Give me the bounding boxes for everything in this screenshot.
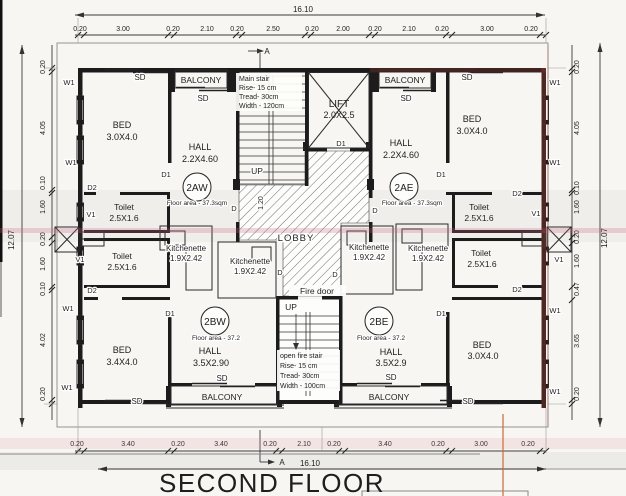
dim-top-12: 3.00 [480,26,494,33]
window-tag: W1 [63,78,74,87]
vent-tag: V1 [75,255,84,264]
hall-label-2be: HALL [380,347,403,357]
toilet-label-2ae: Toilet [469,202,489,212]
sliding-door-tag: SD [134,73,145,82]
lobby-label: LOBBY [278,233,315,244]
dim-right-6: 1.60 [574,254,581,268]
balcony-label: BALCONY [202,392,243,402]
kitchen-label-2aw: Kitchenette [166,244,207,253]
door-tag: D [277,268,283,277]
hall-size-2aw: 2.2X4.60 [182,154,218,164]
fire-stair-up-label: UP [285,302,297,312]
window-tag: W1 [61,383,72,392]
dim-top-7: 0.20 [305,26,319,33]
window-tag: W1 [549,158,560,167]
floor-area-2bw: Floor area - 37.2 [192,335,240,342]
toilet-size-2bw: 2.5X1.6 [107,262,137,272]
dim-left-8: 4.02 [40,333,47,347]
hall-size-2bw: 3.5X2.90 [193,358,229,368]
dim-left-1: 0.20 [40,60,47,74]
door1-tag: D1 [161,170,171,179]
stair-width-dim: 1.20 [258,196,265,210]
lift-label: LIFT [329,99,350,110]
unit-id-2ae: 2AE [395,183,414,194]
kitchen-size-2be: 1.9X2.42 [353,253,386,262]
window-tag: W1 [65,158,76,167]
kitchen-size-2aw: 1.9X2.42 [170,254,203,263]
bed-label-2be: BED [473,340,492,350]
lift-size-label: 2.0X2.5 [323,110,354,120]
vent-tag: V1 [554,255,563,264]
toilet-label-2bw: Toilet [112,251,132,261]
fire-door-label: Fire door [300,286,334,296]
hall-size-2be: 3.5X2.9 [375,358,406,368]
fire-stair-note-line3: Tread- 30cm [280,373,320,380]
fire-stair-note-line2: Rise- 15 cm [280,363,318,370]
main-stair-up-label: UP [251,166,263,176]
floor-area-2ae: Floor area - 37.3sqm [382,200,442,207]
dim-left-6: 1.60 [40,257,47,271]
sliding-door-tag: SD [400,94,411,103]
bed-size-2ae: 3.0X4.0 [456,126,487,136]
sliding-door-tag: SD [216,374,227,383]
toilet-size-2ae: 2.5X1.6 [464,213,494,223]
floor-plan-drawing: 0.20 3.00 0.20 2.10 0.20 2.50 0.20 2.00 … [0,0,626,496]
dim-top-1: 0.20 [73,26,87,33]
dim-left-2: 4.05 [40,121,47,135]
kitchen-label-2bw: Kitchenette [230,257,271,266]
toilet-size-2be: 2.5X1.6 [467,259,497,269]
lift-door-tag: D1 [336,139,346,148]
section-marker-top: A [264,47,270,56]
kitchen-label-2be: Kitchenette [349,243,390,252]
sliding-door-tag: SD [131,397,142,406]
fire-stair-note-line1: open fire stair [280,353,323,360]
dim-top-2: 3.00 [116,26,130,33]
window-tag: W1 [549,387,560,396]
door-tag: D [231,204,237,213]
vent-tag: V1 [86,210,95,219]
main-stair-note-line3: Tread- 30cm [239,94,279,101]
dim-top-11: 0.20 [435,26,449,33]
balcony-label: BALCONY [369,392,410,402]
fire-stair-note-line4: Width - 100cm [280,383,325,390]
dim-right-3: 0.10 [574,181,581,195]
dim-right-9: 0.20 [574,387,581,401]
unit-id-2bw: 2BW [204,317,226,328]
floor-area-2be: Floor area - 37.2 [357,335,405,342]
vent-tag: V1 [531,209,540,218]
door-tag: D [372,206,378,215]
toilet-label-2be: Toilet [471,248,491,258]
window-tag: W1 [549,306,560,315]
main-stair-note-line4: Width - 120cm [239,103,284,110]
dim-top-3: 0.20 [166,26,180,33]
main-stair-note-line1: Main stair [239,76,270,83]
kitchen-size-2bw: 1.9X2.42 [234,267,267,276]
dim-left-4: 1.60 [40,200,47,214]
door2-tag: D2 [87,183,97,192]
main-stair-note-line2: Rise- 15 cm [239,85,277,92]
bed-size-2be: 3.0X4.0 [467,351,498,361]
hall-label-2aw: HALL [189,142,212,152]
scanned-floor-plan-page: 0.20 3.00 0.20 2.10 0.20 2.50 0.20 2.00 … [0,0,626,496]
hall-label-2bw: HALL [199,346,222,356]
bed-label-2bw: BED [113,345,132,355]
door1-tag: D1 [436,170,446,179]
balcony-label: BALCONY [385,75,426,85]
sliding-door-tag: SD [197,94,208,103]
bed-label-2ae: BED [463,114,482,124]
dim-top-4: 2.10 [200,26,214,33]
dim-top-8: 2.00 [336,26,350,33]
window-tag: W1 [62,304,73,313]
sliding-door-tag: SD [461,73,472,82]
dim-left-9: 0.20 [40,387,47,401]
dim-top-9: 0.20 [368,26,382,33]
dim-right-2: 4.05 [574,121,581,135]
door2-tag: D2 [512,189,522,198]
bed-label-2aw: BED [113,120,132,130]
dim-right-1: 0.20 [574,60,581,74]
drawing-title: SECOND FLOOR [159,468,385,496]
sliding-door-tag: SD [385,373,396,382]
kitchen-label-2ae: Kitchenette [408,244,449,253]
dim-top-6: 2.50 [266,26,280,33]
door-tag: D [332,270,338,279]
dim-left-3: 0.10 [40,176,47,190]
unit-id-2aw: 2AW [186,183,208,194]
balcony-label: BALCONY [181,75,222,85]
door2-tag: D2 [87,286,97,295]
dim-right-8: 3.65 [574,334,581,348]
dim-right-4: 1.60 [574,200,581,214]
floor-area-2aw: Floor area - 37.3sqm [167,200,227,207]
door1-tag: D1 [436,309,446,318]
hall-size-2ae: 2.2X4.60 [383,150,419,160]
door1-tag: D1 [165,309,175,318]
dim-top-5: 0.20 [230,26,244,33]
unit-id-2be: 2BE [370,317,389,328]
door2-tag: D2 [512,285,522,294]
kitchen-size-2ae: 1.9X2.42 [412,254,445,263]
dim-top-10: 2.10 [402,26,416,33]
toilet-size-2aw: 2.5X1.6 [109,213,139,223]
toilet-label-2aw: Toilet [114,202,134,212]
dim-top-13: 0.20 [524,26,538,33]
dim-left-7: 0.10 [40,282,47,296]
window-tag: W1 [549,78,560,87]
dim-right-7: 0.47 [574,282,581,296]
hall-label-2ae: HALL [390,138,413,148]
dim-top-total: 16.10 [293,5,314,14]
sliding-door-tag: SD [462,397,473,406]
bed-size-2aw: 3.0X4.0 [106,132,137,142]
dim-left-5: 0.20 [40,232,47,246]
bed-size-2bw: 3.4X4.0 [106,357,137,367]
